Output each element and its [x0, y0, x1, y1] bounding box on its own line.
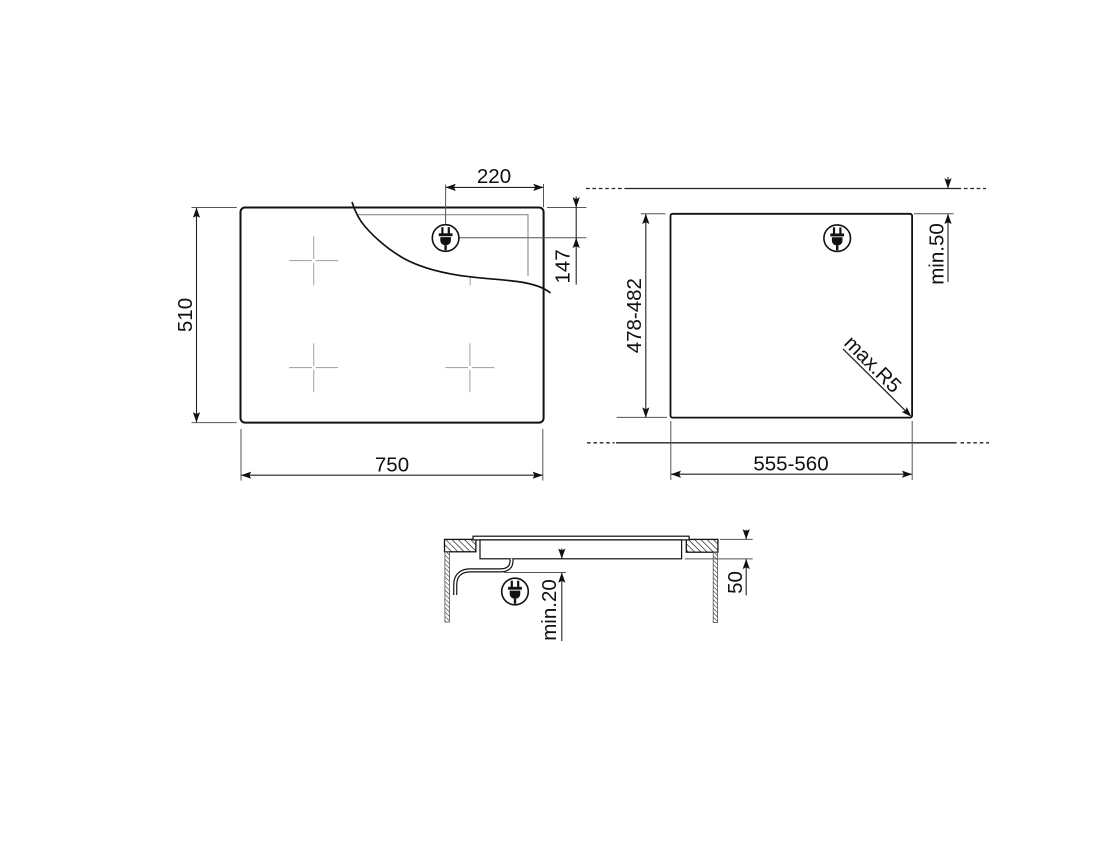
svg-text:555-560: 555-560: [753, 453, 828, 476]
svg-text:min.20: min.20: [538, 579, 561, 641]
svg-text:478-482: 478-482: [623, 278, 646, 353]
svg-text:147: 147: [552, 249, 575, 283]
svg-text:min.50: min.50: [925, 223, 948, 285]
svg-text:750: 750: [375, 454, 409, 477]
svg-text:510: 510: [174, 298, 197, 332]
svg-text:50: 50: [724, 571, 747, 594]
svg-text:220: 220: [477, 165, 511, 188]
